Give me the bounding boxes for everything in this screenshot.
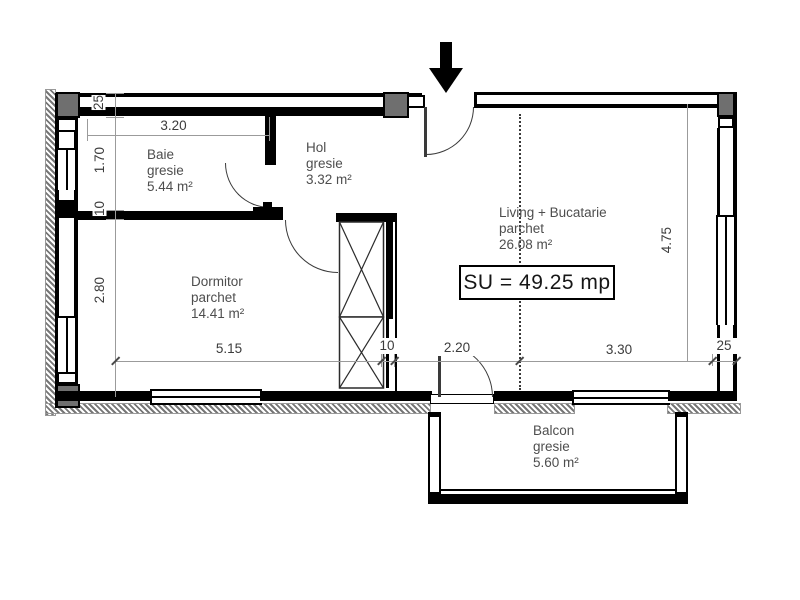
shaft-closet-x — [336, 213, 398, 391]
dormitor-door-arc — [285, 220, 338, 273]
balcony-wall-right — [675, 412, 688, 494]
dim-living-width: 3.30 — [596, 342, 642, 358]
room-name: Living + Bucatarie — [499, 205, 607, 221]
ext-left-a — [106, 93, 124, 94]
dim-shaft-wall: 10 — [374, 338, 400, 354]
dim-dormitor-height: 2.80 — [93, 277, 107, 303]
room-name: Dormitor — [191, 274, 244, 290]
wall-top-living-inner — [474, 104, 720, 108]
dimline-left — [115, 93, 116, 397]
ext-left-d — [106, 219, 124, 220]
room-finish: gresie — [147, 163, 193, 179]
pillar-top-hol — [383, 92, 409, 118]
pillar-top-left — [56, 92, 80, 118]
wall-bottom-1 — [56, 391, 152, 401]
room-label-dormitor: Dormitor parchet 14.41 m² — [191, 274, 244, 321]
doorframe-box-entry — [407, 95, 425, 108]
total-area-box: SU = 49.25 mp — [459, 265, 615, 300]
dim-living-height: 4.75 — [660, 227, 674, 253]
window-dormitor-south — [150, 389, 262, 405]
room-area: 5.60 m² — [533, 455, 579, 471]
room-label-living: Living + Bucatarie parchet 26.08 m² — [499, 205, 607, 252]
dimline-right — [687, 104, 688, 362]
room-area: 5.44 m² — [147, 179, 193, 195]
total-area-label: SU = 49.25 mp — [463, 271, 610, 295]
balcony-foot-right — [676, 412, 687, 417]
hatch-bottom-left — [46, 404, 430, 413]
wall-right-inner-2 — [717, 325, 720, 391]
framebox-right — [718, 117, 734, 128]
room-name: Balcon — [533, 423, 579, 439]
floor-plan: 3.20 25 1.70 10 2.80 5.15 10 2.20 3.30 2… — [0, 0, 800, 600]
room-finish: gresie — [533, 439, 579, 455]
wall-right-inner-1 — [717, 128, 720, 215]
dimline-top — [87, 135, 270, 136]
room-label-baie: Baie gresie 5.44 m² — [147, 147, 193, 194]
dim-baie-height: 1.70 — [93, 147, 107, 173]
window-living-east — [716, 215, 736, 325]
room-area: 3.32 m² — [306, 172, 352, 188]
room-label-balcon: Balcon gresie 5.60 m² — [533, 423, 579, 470]
window-dormitor — [56, 316, 77, 372]
wall-bottom-4 — [668, 391, 737, 401]
wall-left-joint — [55, 200, 78, 218]
wall-top-living-cap — [474, 92, 477, 108]
room-name: Hol — [306, 140, 352, 156]
dim-dormitor-width: 5.15 — [198, 341, 260, 357]
dim-right-wall: 25 — [711, 338, 737, 354]
room-finish: gresie — [306, 156, 352, 172]
ext-top-a — [87, 119, 88, 141]
wall-partition-2 — [253, 207, 283, 220]
balcony-foot-left — [429, 412, 440, 417]
framebox-left-top — [57, 118, 77, 132]
wall-top-living-outer — [474, 92, 737, 95]
wall-bottom-3 — [494, 391, 574, 401]
framebox-left-bottom — [57, 372, 77, 384]
dim-balcony-door: 2.20 — [435, 340, 479, 356]
room-area: 26.08 m² — [499, 237, 607, 253]
wall-bottom-2 — [260, 391, 432, 401]
room-label-hol: Hol gresie 3.32 m² — [306, 140, 352, 187]
room-area: 14.41 m² — [191, 306, 244, 322]
ext-top-b — [269, 117, 270, 141]
balcony-inner-line — [441, 489, 675, 491]
room-finish: parchet — [499, 221, 607, 237]
hatch-bottom-mid — [495, 404, 574, 413]
hatch-left — [46, 90, 55, 415]
wall-partition-tab — [263, 202, 272, 208]
ext-left-c — [106, 210, 124, 211]
dim-top-wall: 25 — [92, 95, 106, 110]
room-name: Baie — [147, 147, 193, 163]
balcony-wall-left — [428, 412, 441, 494]
wall-baie-hol — [265, 115, 276, 165]
dim-partition: 10 — [93, 201, 107, 216]
balcony-wall-bottom — [428, 494, 688, 504]
room-finish: parchet — [191, 290, 244, 306]
entrance-arrow-icon — [429, 42, 463, 92]
dimline-bottom — [115, 361, 737, 362]
window-living-south — [572, 390, 670, 405]
ext-left-b — [106, 117, 124, 118]
entry-door-arc — [426, 107, 474, 155]
dim-baie-width: 3.20 — [145, 118, 202, 134]
window-baie — [56, 148, 77, 190]
